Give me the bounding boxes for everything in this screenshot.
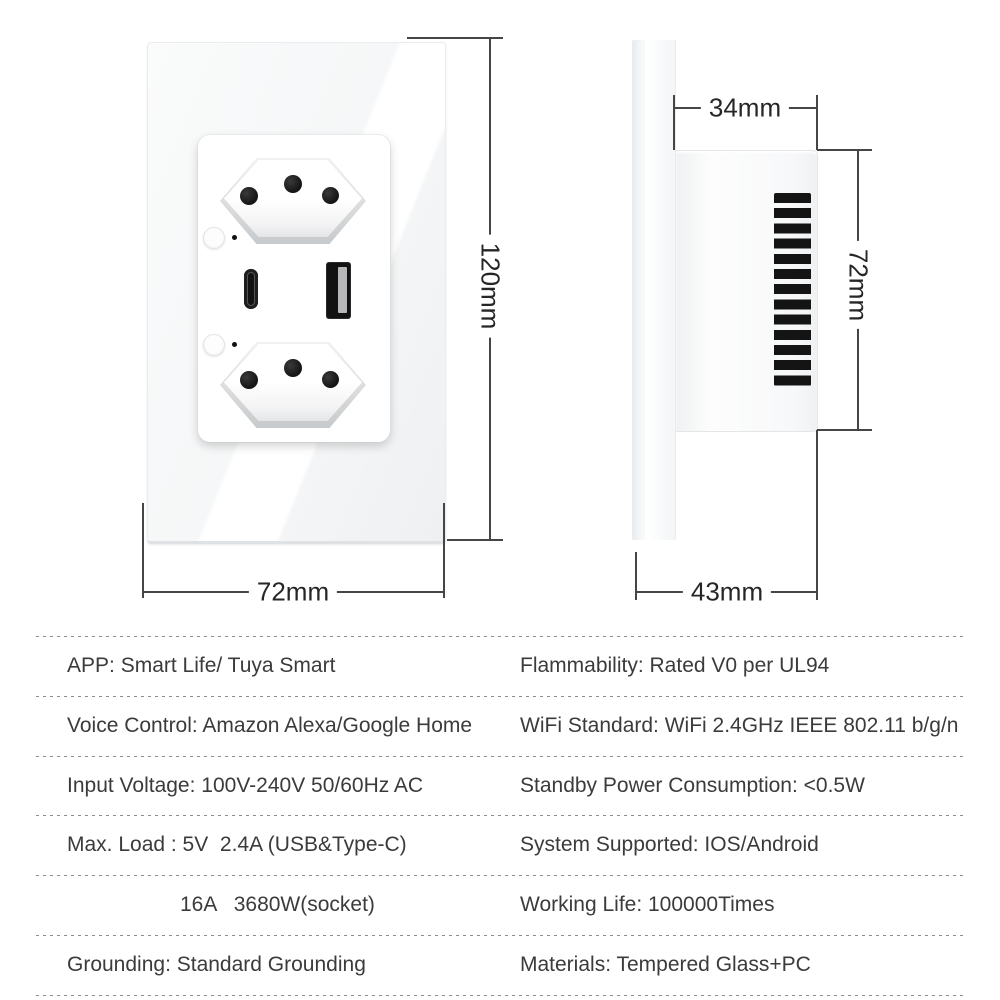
side-glass-edge bbox=[632, 40, 645, 540]
touch-button-bottom bbox=[203, 334, 225, 356]
dimension-tick bbox=[816, 95, 818, 150]
front-width-label: 72mm bbox=[249, 578, 337, 607]
vent-slots bbox=[774, 193, 811, 386]
power-socket-top bbox=[220, 158, 366, 244]
spec-cell: Grounding: Standard Grounding bbox=[67, 953, 366, 977]
spec-cell: 16A 3680W(socket) bbox=[180, 893, 375, 917]
spec-cell: Input Voltage: 100V-240V 50/60Hz AC bbox=[67, 774, 423, 798]
divider bbox=[36, 995, 965, 996]
spec-row: Voice Control: Amazon Alexa/Google Home … bbox=[36, 696, 965, 756]
product-spec-image: 120mm 72mm 34mm 72mm 43mm APP: Smart Lif… bbox=[0, 0, 1000, 1000]
spec-row: 16A 3680W(socket) Working Life: 100000Ti… bbox=[36, 875, 965, 935]
front-glass-panel bbox=[147, 42, 446, 544]
socket-pin-hole-ground bbox=[284, 359, 302, 377]
spec-cell: Flammability: Rated V0 per UL94 bbox=[520, 654, 829, 678]
socket-pin-hole-left bbox=[240, 371, 258, 389]
spec-cell: Voice Control: Amazon Alexa/Google Home bbox=[67, 714, 472, 738]
spec-cell: Max. Load : 5V 2.4A (USB&Type-C) bbox=[67, 833, 407, 857]
usb-a-tongue bbox=[338, 267, 347, 313]
usb-c-port bbox=[244, 269, 258, 309]
usb-a-port bbox=[327, 263, 350, 318]
side-height-label: 72mm bbox=[844, 241, 873, 329]
spec-cell: APP: Smart Life/ Tuya Smart bbox=[67, 654, 335, 678]
dimension-tick bbox=[673, 95, 675, 150]
side-glass-panel bbox=[646, 40, 676, 540]
socket-pin-hole-right bbox=[322, 371, 339, 388]
dimension-tick bbox=[443, 503, 445, 598]
spec-cell: Standby Power Consumption: <0.5W bbox=[520, 774, 865, 798]
spec-cell: Materials: Tempered Glass+PC bbox=[520, 953, 811, 977]
spec-row: Max. Load : 5V 2.4A (USB&Type-C) System … bbox=[36, 815, 965, 875]
side-depth-label: 34mm bbox=[701, 94, 789, 123]
socket-pin-hole-ground bbox=[284, 175, 302, 193]
led-indicator-bottom bbox=[232, 342, 237, 347]
dimension-tick bbox=[817, 429, 872, 431]
touch-button-top bbox=[203, 227, 225, 249]
socket-pin-hole-left bbox=[240, 187, 258, 205]
power-socket-bottom bbox=[220, 342, 366, 428]
side-body bbox=[676, 150, 818, 432]
spec-cell: WiFi Standard: WiFi 2.4GHz IEEE 802.11 b… bbox=[520, 714, 958, 738]
socket-module bbox=[198, 135, 390, 442]
spec-row: Grounding: Standard Grounding Materials:… bbox=[36, 935, 965, 995]
spec-row: Input Voltage: 100V-240V 50/60Hz AC Stan… bbox=[36, 756, 965, 815]
dimension-tick bbox=[816, 430, 818, 600]
spec-row: APP: Smart Life/ Tuya Smart Flammability… bbox=[36, 636, 965, 696]
spec-cell: System Supported: IOS/Android bbox=[520, 833, 819, 857]
side-base-width-label: 43mm bbox=[683, 578, 771, 607]
front-height-label: 120mm bbox=[476, 235, 505, 338]
dimension-tick bbox=[447, 539, 503, 541]
spec-cell: Working Life: 100000Times bbox=[520, 893, 774, 917]
socket-pin-hole-right bbox=[322, 187, 339, 204]
led-indicator-top bbox=[232, 235, 237, 240]
dimension-tick bbox=[142, 503, 144, 598]
dimension-tick bbox=[817, 149, 872, 151]
